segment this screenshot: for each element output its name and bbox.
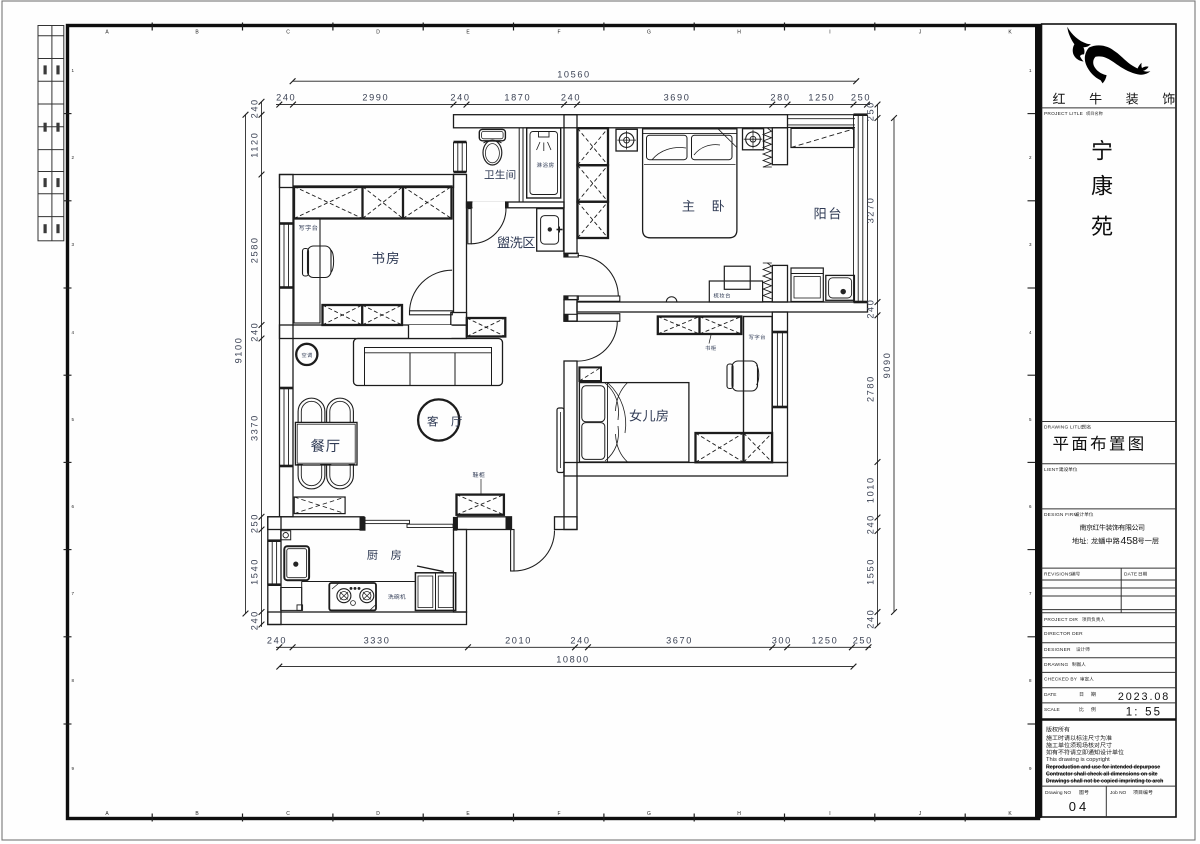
svg-text:3270: 3270 (865, 197, 875, 224)
svg-text:9100: 9100 (233, 337, 243, 364)
svg-text:1120: 1120 (249, 132, 259, 158)
svg-text:2990: 2990 (362, 93, 389, 103)
svg-text:DRAWING LITLE: DRAWING LITLE (1044, 425, 1084, 431)
svg-text:3330: 3330 (364, 635, 391, 645)
svg-text:250: 250 (865, 101, 875, 121)
svg-text:1870: 1870 (504, 93, 531, 103)
svg-text:240: 240 (561, 93, 581, 103)
svg-text:1540: 1540 (249, 558, 259, 585)
svg-text:DRAWING: DRAWING (1044, 662, 1068, 668)
svg-text:F: F (557, 30, 560, 36)
svg-text:3690: 3690 (664, 93, 691, 103)
svg-text:1010: 1010 (865, 476, 875, 503)
svg-text:2780: 2780 (865, 375, 875, 402)
svg-text:Job NO: Job NO (1110, 790, 1127, 796)
svg-text:Contractor shall check all dim: Contractor shall check all dimensions on… (1046, 771, 1158, 777)
svg-text:PROJECT DIR: PROJECT DIR (1044, 617, 1078, 623)
svg-text:458: 458 (1121, 535, 1139, 547)
svg-text:10560: 10560 (557, 70, 591, 80)
svg-text:240: 240 (249, 610, 259, 630)
svg-text:240: 240 (865, 609, 875, 629)
svg-text:250: 250 (249, 513, 259, 533)
svg-text:04: 04 (1069, 799, 1089, 814)
svg-text:1250: 1250 (811, 635, 838, 645)
svg-text:DATE: DATE (1044, 692, 1056, 698)
svg-text:D: D (376, 811, 380, 817)
svg-text:D: D (376, 30, 380, 36)
svg-text:I: I (829, 30, 830, 36)
svg-text:1250: 1250 (808, 93, 835, 103)
svg-text:240: 240 (249, 98, 259, 118)
svg-text:300: 300 (772, 635, 792, 645)
svg-text:F: F (557, 811, 560, 817)
svg-text:CHECKED BY: CHECKED BY (1044, 677, 1078, 683)
svg-text:SCALE: SCALE (1044, 707, 1060, 713)
svg-text:250: 250 (853, 635, 873, 645)
svg-text:240: 240 (276, 93, 296, 103)
svg-text:DIRECTOR DER: DIRECTOR DER (1044, 631, 1083, 637)
svg-text:240: 240 (450, 93, 470, 103)
svg-text:PROJECT LITLE: PROJECT LITLE (1044, 111, 1083, 117)
svg-text:DESIGN FIRM: DESIGN FIRM (1044, 512, 1078, 518)
svg-text:240: 240 (865, 299, 875, 319)
svg-text:C: C (286, 811, 290, 817)
svg-text:240: 240 (267, 635, 287, 645)
svg-text:240: 240 (570, 635, 590, 645)
svg-text:DATE: DATE (1124, 572, 1137, 578)
svg-text:G: G (647, 811, 651, 817)
svg-text:2023.08: 2023.08 (1118, 691, 1170, 703)
svg-text::: : (1087, 539, 1089, 546)
svg-text:3670: 3670 (666, 635, 693, 645)
svg-text:2580: 2580 (249, 236, 259, 263)
svg-text:240: 240 (865, 514, 875, 534)
svg-text:10800: 10800 (556, 655, 590, 665)
svg-text:I: I (829, 811, 830, 817)
svg-text:H: H (737, 30, 741, 36)
svg-text:3370: 3370 (249, 414, 259, 441)
svg-text:C: C (286, 30, 290, 36)
svg-text:REVISIONS: REVISIONS (1044, 572, 1072, 578)
svg-text:G: G (647, 30, 651, 36)
svg-text:2010: 2010 (505, 635, 532, 645)
svg-text:H: H (737, 811, 741, 817)
svg-text:Reproduction and use for inten: Reproduction and use for intended depurp… (1046, 764, 1160, 770)
svg-text:DESIGNER: DESIGNER (1044, 647, 1071, 653)
svg-text:Drawings shall not be copied i: Drawings shall not be copied imprinting … (1046, 778, 1163, 784)
svg-text:9090: 9090 (882, 352, 892, 379)
svg-text:240: 240 (249, 322, 259, 342)
svg-text:Drawing NO: Drawing NO (1045, 790, 1071, 796)
svg-text:280: 280 (770, 93, 790, 103)
svg-text:LIENT: LIENT (1044, 467, 1059, 473)
svg-text:1: 55: 1: 55 (1126, 707, 1163, 719)
svg-text:This drawing is copyright: This drawing is copyright (1046, 757, 1110, 763)
svg-text:1550: 1550 (865, 558, 875, 585)
